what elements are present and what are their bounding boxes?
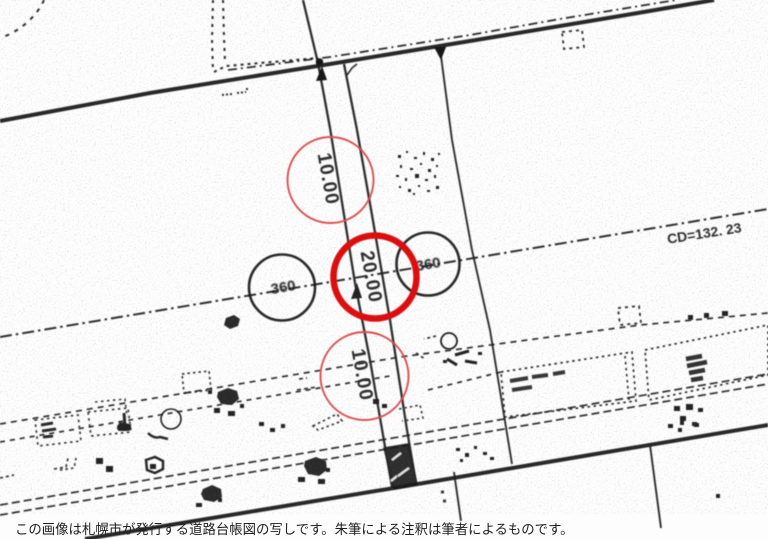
svg-text:この画像は札幌市が発行する道路台帳図の写しです。朱筆による注: この画像は札幌市が発行する道路台帳図の写しです。朱筆による注釈は筆者によるもので…	[15, 521, 574, 537]
